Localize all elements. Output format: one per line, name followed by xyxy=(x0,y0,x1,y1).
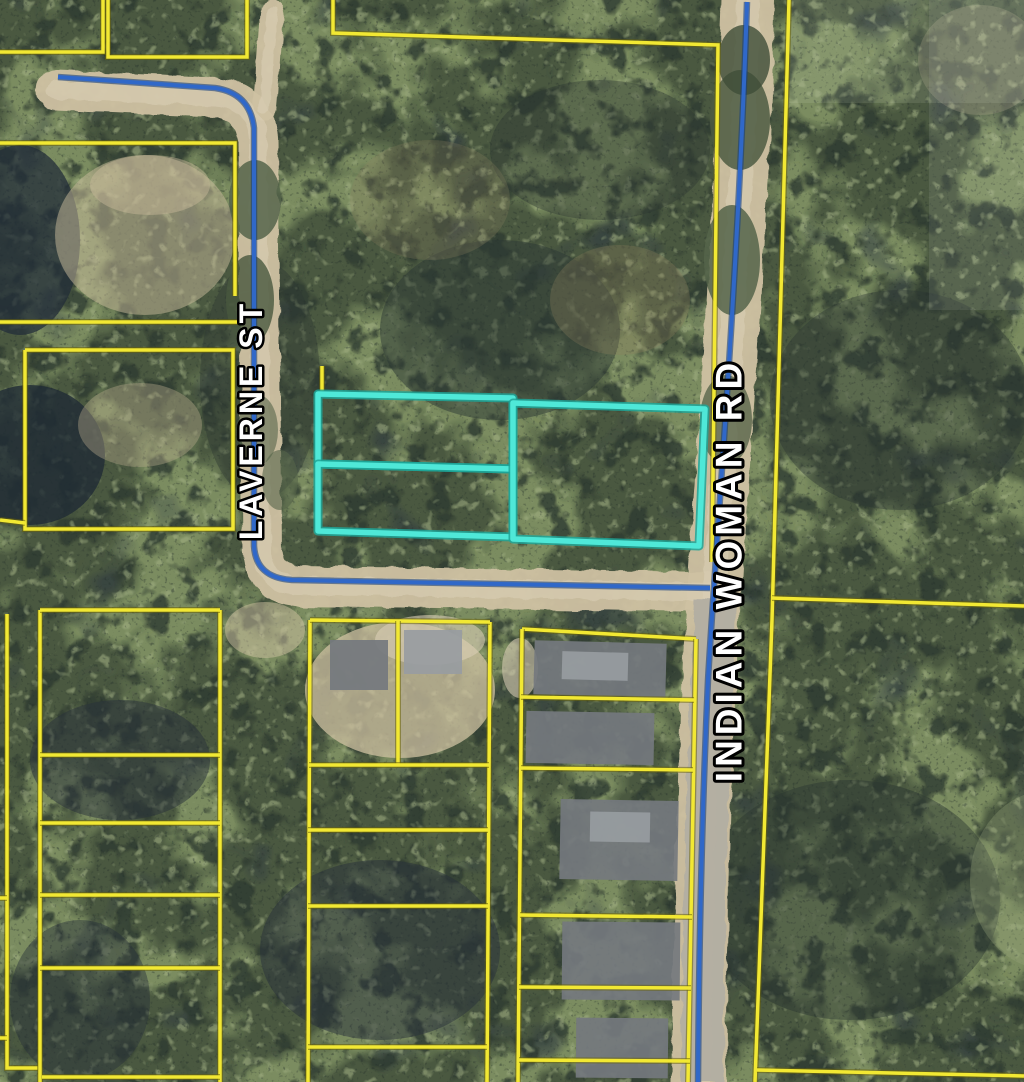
imagery-seam xyxy=(789,0,1024,103)
parcel-line xyxy=(519,987,691,988)
street-label-indian-woman-rd: INDIAN WOMAN RD xyxy=(709,358,750,782)
house-roof xyxy=(330,640,388,690)
shadow-patch xyxy=(700,780,1000,1020)
clearing xyxy=(78,383,202,467)
shadow-patch xyxy=(10,920,150,1080)
house-roof xyxy=(590,811,651,842)
street-label-laverne-st: LAVERNE ST xyxy=(233,300,269,540)
clearing xyxy=(550,245,690,355)
shadow-patch xyxy=(490,80,710,220)
parcel-line xyxy=(520,915,692,917)
house-roof xyxy=(526,711,655,765)
shadow-patch xyxy=(770,290,1024,510)
shadow-patch xyxy=(30,700,210,820)
aerial-parcel-map[interactable]: LAVERNE STINDIAN WOMAN RD xyxy=(0,0,1024,1082)
parcel-line xyxy=(521,768,693,770)
clearing xyxy=(225,602,305,658)
shadow-patch xyxy=(260,860,500,1040)
parcel-line xyxy=(308,620,310,1082)
house-roof xyxy=(562,651,629,681)
clearing xyxy=(350,140,510,260)
laverne-north-stub-center xyxy=(265,12,272,108)
house-roof xyxy=(404,630,462,674)
parcel-line xyxy=(519,1060,690,1061)
parcel-map-viewport[interactable]: LAVERNE STINDIAN WOMAN RD xyxy=(0,0,1024,1082)
clearing xyxy=(90,155,210,215)
house-roof xyxy=(576,1018,669,1079)
